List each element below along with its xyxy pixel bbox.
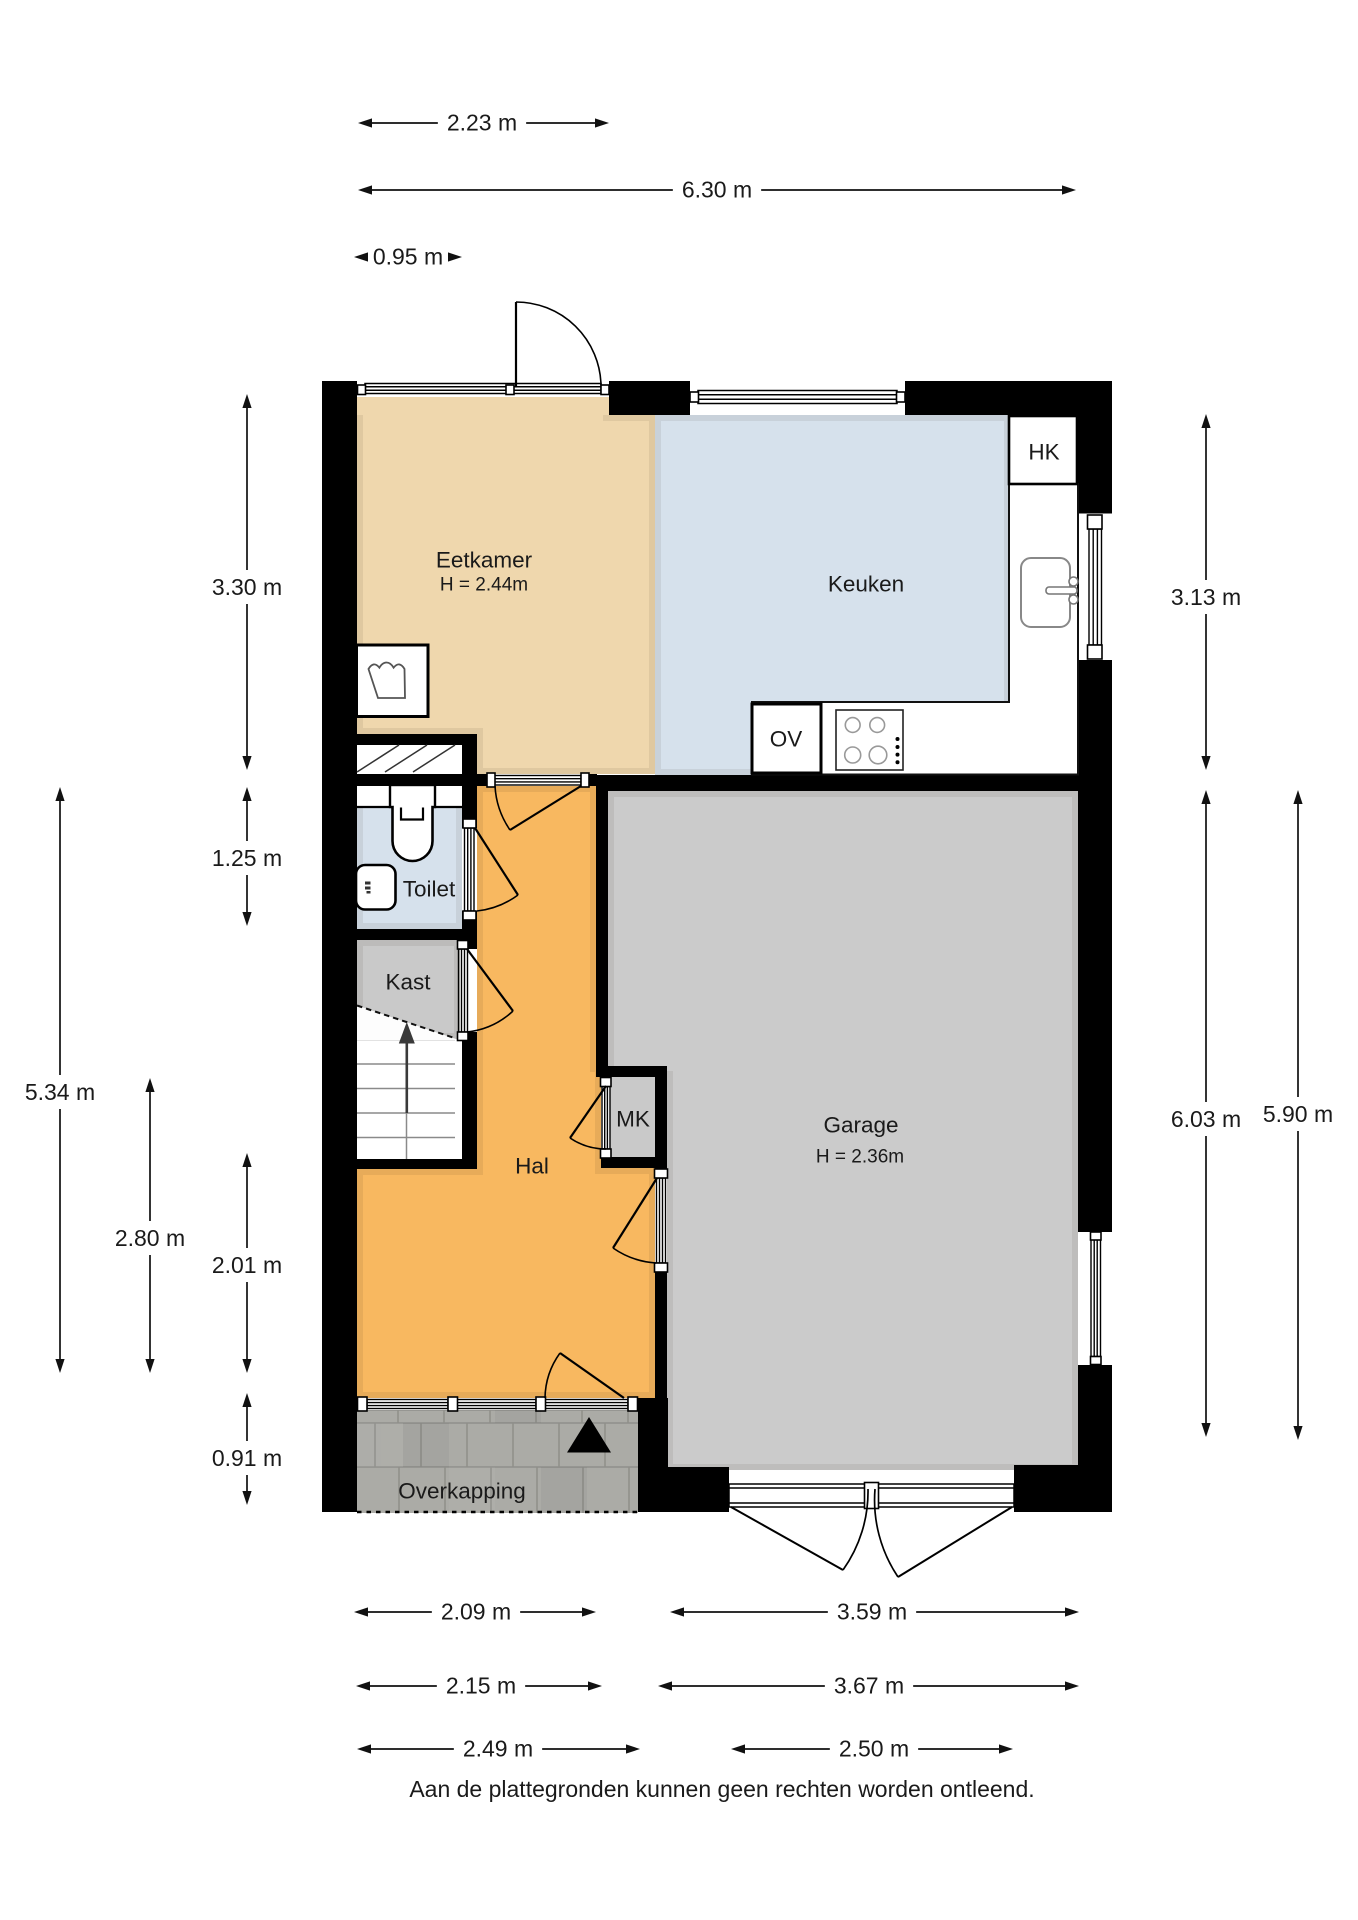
svg-text:Aan de plattegronden kunnen ge: Aan de plattegronden kunnen geen rechten… (409, 1776, 1034, 1802)
svg-text:Overkapping: Overkapping (398, 1479, 526, 1504)
svg-text:3.13 m: 3.13 m (1171, 584, 1241, 610)
svg-text:2.49 m: 2.49 m (463, 1736, 533, 1762)
svg-text:5.34 m: 5.34 m (25, 1079, 95, 1105)
svg-text:H = 2.36m: H = 2.36m (816, 1147, 904, 1168)
svg-text:3.30 m: 3.30 m (212, 574, 282, 600)
svg-text:2.09 m: 2.09 m (441, 1599, 511, 1625)
svg-text:0.95 m: 0.95 m (373, 244, 443, 270)
svg-text:3.67 m: 3.67 m (834, 1673, 904, 1699)
svg-text:Kast: Kast (385, 970, 431, 995)
svg-text:Hal: Hal (515, 1154, 549, 1179)
svg-text:6.30 m: 6.30 m (682, 177, 752, 203)
svg-text:H = 2.44m: H = 2.44m (440, 575, 528, 596)
svg-text:HK: HK (1028, 440, 1059, 465)
svg-text:MK: MK (616, 1107, 650, 1132)
svg-text:Keuken: Keuken (828, 572, 904, 597)
svg-text:5.90 m: 5.90 m (1263, 1101, 1333, 1127)
svg-text:Garage: Garage (823, 1113, 898, 1138)
svg-text:2.50 m: 2.50 m (839, 1736, 909, 1762)
svg-text:0.91 m: 0.91 m (212, 1445, 282, 1471)
svg-text:Toilet: Toilet (403, 877, 456, 902)
svg-text:Eetkamer: Eetkamer (436, 548, 533, 573)
svg-text:3.59 m: 3.59 m (837, 1599, 907, 1625)
svg-text:2.01 m: 2.01 m (212, 1252, 282, 1278)
svg-text:2.80 m: 2.80 m (115, 1225, 185, 1251)
svg-text:OV: OV (770, 727, 803, 752)
svg-text:2.15 m: 2.15 m (446, 1673, 516, 1699)
svg-text:6.03 m: 6.03 m (1171, 1106, 1241, 1132)
svg-text:1.25 m: 1.25 m (212, 845, 282, 871)
svg-text:2.23 m: 2.23 m (447, 110, 517, 136)
